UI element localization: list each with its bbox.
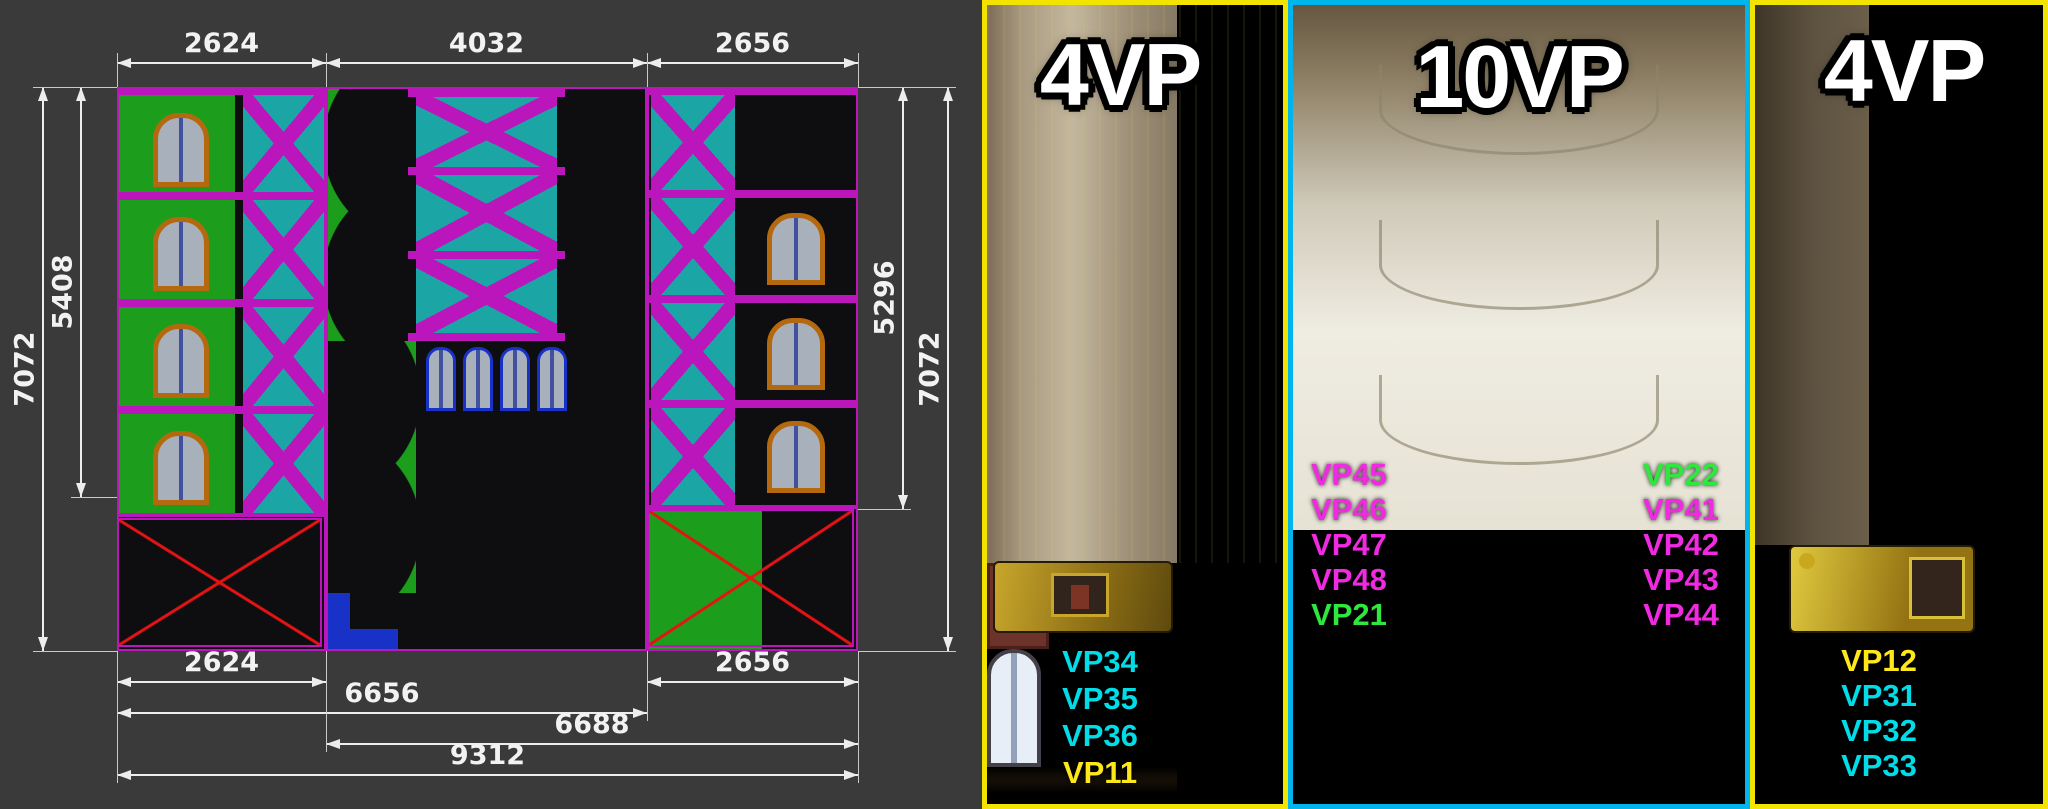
vp-label: VP46	[1297, 492, 1401, 527]
transverse-arch-bar	[649, 89, 856, 95]
vp-label: VP32	[1827, 713, 1931, 748]
cornice-block	[328, 643, 398, 651]
vp-label: VP21	[1297, 597, 1401, 632]
wall-fade	[987, 793, 1177, 809]
arched-window-shape	[153, 217, 209, 291]
dimension-line-horizontal: 2624	[117, 62, 326, 64]
uv-atlas-drawing: 2624403226567072540852967072262426566656…	[0, 0, 982, 809]
extension-line	[858, 87, 956, 88]
dimension-value: 9312	[117, 740, 858, 771]
nave-arch-void	[1293, 680, 1403, 809]
dimension-value: 2624	[117, 647, 326, 678]
vp-label: VP31	[1827, 678, 1931, 713]
extension-line	[858, 651, 956, 652]
dimension-line-horizontal: 2624	[117, 681, 326, 683]
arched-window-shape	[767, 421, 825, 493]
vault-cell	[651, 95, 735, 190]
vp-label: VP36	[1015, 717, 1185, 754]
dimension-line-horizontal: 6656	[117, 712, 647, 714]
dimension-line-vertical: 5408	[80, 87, 82, 497]
dimension-line-horizontal: 4032	[326, 62, 647, 64]
transverse-arch-bar	[408, 167, 565, 175]
vp-label: VP43	[1629, 562, 1733, 597]
extension-line	[647, 53, 648, 87]
extension-line	[71, 497, 117, 498]
ortho-panel-4vp-left: 4VP VP34VP35VP36VP11	[982, 0, 1288, 809]
unused-region-cross	[647, 509, 854, 647]
extension-line	[326, 651, 327, 752]
vp-label: VP44	[1629, 597, 1733, 632]
arched-window-shape	[153, 113, 209, 187]
vp-label: VP22	[1629, 457, 1733, 492]
transverse-arch-bar	[119, 192, 324, 200]
extension-line	[326, 53, 327, 87]
keystone-block	[328, 617, 350, 629]
dimension-line-vertical: 5296	[902, 87, 904, 509]
vp-label: VP11	[1015, 754, 1185, 791]
extension-line	[858, 651, 859, 783]
vp-label: VP47	[1297, 527, 1401, 562]
vault-cell	[651, 303, 735, 400]
dimension-value: 5296	[870, 260, 901, 335]
arched-window-shape	[153, 431, 209, 505]
cornice-block	[328, 629, 398, 643]
transverse-arch-bar	[408, 333, 565, 341]
dimension-line-horizontal: 2656	[647, 681, 858, 683]
extension-line	[326, 651, 327, 690]
vault-cell	[243, 200, 324, 299]
clerestory-window-shape	[537, 347, 567, 411]
extension-line	[647, 651, 648, 721]
atlas-panel-middle	[326, 87, 647, 651]
extension-line	[117, 651, 118, 783]
vp-label: VP45	[1297, 457, 1401, 492]
extension-line	[858, 651, 859, 690]
transverse-arch-bar	[649, 190, 856, 198]
extension-line	[33, 651, 117, 652]
dimension-value: 2656	[647, 28, 858, 59]
vp-label: VP34	[1015, 643, 1185, 680]
side-wall-arches	[328, 341, 416, 593]
transverse-arch-bar	[119, 513, 324, 517]
vault-cell	[651, 198, 735, 295]
vault-cell	[243, 414, 324, 513]
clerestory-window-shape	[426, 347, 456, 411]
side-wall-arches	[328, 89, 416, 341]
vp-label: VP41	[1629, 492, 1733, 527]
vp-list-middle-left: VP45VP46VP47VP48VP21	[1297, 457, 1401, 632]
atlas-panel-left	[117, 87, 326, 651]
extension-line	[117, 651, 118, 690]
vp-list-middle-right: VP22VP41VP42VP43VP44	[1629, 457, 1733, 632]
vault-cell	[243, 307, 324, 406]
transverse-arch-bar	[119, 406, 324, 414]
panel-title: 10VP	[1404, 33, 1634, 121]
arched-window-shape	[767, 318, 825, 390]
extension-line	[117, 651, 118, 721]
vp-list-right-panel: VP12VP31VP32VP33	[1827, 643, 1931, 783]
keystone-block	[328, 605, 350, 617]
vault-cell	[416, 175, 557, 251]
dimension-value: 6688	[326, 709, 858, 740]
transverse-arch-bar	[119, 299, 324, 307]
extension-line	[858, 53, 859, 87]
vault-arch-void	[1755, 805, 1845, 809]
extension-line	[71, 87, 117, 88]
vault-cell	[416, 259, 557, 333]
vault-rib-arc	[1379, 375, 1659, 465]
vault-rib-arc	[1379, 220, 1659, 310]
altarpiece-figure	[1071, 585, 1089, 609]
panel-title: 4VP	[1797, 27, 2011, 115]
transverse-arch-bar	[408, 89, 565, 97]
extension-line	[858, 651, 859, 752]
vault-cell	[243, 95, 324, 192]
transverse-arch-bar	[408, 251, 565, 259]
extension-line	[326, 53, 327, 87]
dimension-line-horizontal: 2656	[647, 62, 858, 64]
dimension-value: 2624	[117, 28, 326, 59]
vp-label: VP12	[1827, 643, 1931, 678]
panel-title: 4VP	[1005, 31, 1235, 119]
extension-line	[647, 53, 648, 87]
atlas-panel-right	[647, 87, 858, 651]
extension-line	[647, 651, 648, 690]
vault-cell	[651, 408, 735, 505]
extension-line	[33, 87, 117, 88]
transverse-arch-bar	[649, 295, 856, 303]
extension-line	[117, 53, 118, 87]
dimension-value: 7072	[915, 331, 946, 406]
dimension-value: 5408	[48, 254, 79, 329]
arched-window-shape	[153, 324, 209, 398]
transverse-arch-bar	[649, 400, 856, 408]
clerestory-window-shape	[463, 347, 493, 411]
ortho-panel-4vp-right: 4VP VP12VP31VP32VP33	[1750, 0, 2048, 809]
dimension-line-horizontal: 9312	[117, 774, 858, 776]
dimension-value: 7072	[10, 331, 41, 406]
altarpiece-painting	[1909, 557, 1965, 619]
figure-root: 2624403226567072540852967072262426566656…	[0, 0, 2048, 809]
extension-line	[858, 509, 911, 510]
ortho-panel-10vp-middle: 10VP VP45VP46VP47VP48VP21 VP22VP41VP42VP…	[1288, 0, 1750, 809]
dimension-line-vertical: 7072	[42, 87, 44, 651]
transverse-arch-bar	[119, 89, 324, 95]
dimension-value: 4032	[326, 28, 647, 59]
vp-label: VP33	[1827, 748, 1931, 783]
dimension-line-vertical: 7072	[947, 87, 949, 651]
arched-window-shape	[767, 213, 825, 285]
vp-label: VP35	[1015, 680, 1185, 717]
keystone-block	[328, 593, 350, 605]
unused-region-cross	[117, 518, 322, 647]
vp-label: VP42	[1629, 527, 1733, 562]
vault-cell	[416, 97, 557, 167]
dimension-value: 2656	[647, 647, 858, 678]
altarpiece-finial	[1799, 553, 1815, 569]
extension-line	[858, 87, 911, 88]
dimension-line-horizontal: 6688	[326, 743, 858, 745]
vp-list-left-panel: VP34VP35VP36VP11	[1015, 643, 1185, 791]
vp-label: VP48	[1297, 562, 1401, 597]
clerestory-window-shape	[500, 347, 530, 411]
dimension-value: 6656	[117, 678, 647, 709]
